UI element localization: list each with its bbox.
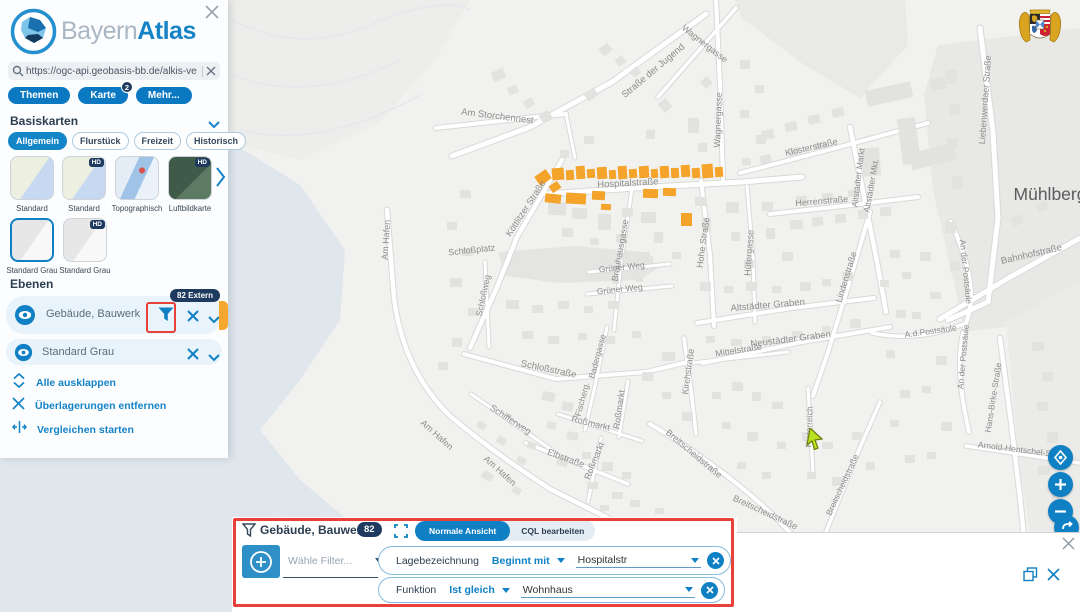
search-icon: [12, 65, 24, 77]
choose-filter-underline: [283, 577, 378, 578]
nav-karte-label: Karte: [90, 90, 116, 101]
panel-close-icon[interactable]: [1047, 568, 1060, 581]
toggle-normale-ansicht[interactable]: Normale Ansicht: [415, 521, 510, 541]
thumb-label: Standard Grau: [58, 266, 112, 275]
action-label: Überlagerungen entfernen: [35, 400, 166, 412]
brand-bold: Atlas: [137, 17, 196, 45]
thumbs-scroll-right-icon[interactable]: [215, 166, 226, 193]
search-box: [8, 62, 220, 80]
layer-drag-tab[interactable]: [219, 301, 228, 330]
sidebar-close-icon[interactable]: [204, 4, 222, 22]
layer-remove-icon[interactable]: [187, 347, 199, 365]
rule-value: Hospitalstr: [578, 554, 628, 566]
mouse-cursor-icon: [806, 428, 826, 455]
tab-historisch[interactable]: Historisch: [186, 132, 246, 150]
hd-badge: HD: [89, 158, 104, 167]
ebenen-heading: Ebenen: [10, 277, 53, 291]
remove-rule-icon[interactable]: [701, 582, 718, 599]
rule-attribute: Funktion: [396, 584, 436, 596]
layer-label: Gebäude, Bauwerk: [46, 308, 140, 320]
tab-allgemein[interactable]: Allgemein: [8, 132, 67, 150]
layer-card-standard-grau: Standard Grau: [6, 339, 222, 365]
layer-filter-icon[interactable]: [158, 307, 174, 327]
remove-overlays-icon: [12, 397, 25, 415]
basemap-category-tabs: Allgemein Flurstück Freizeit Historisch: [8, 132, 246, 150]
app-title: BayernAtlas: [61, 17, 196, 46]
chevron-down-icon[interactable]: [557, 558, 565, 563]
thumb-label: Topographisch: [110, 204, 164, 213]
hd-badge: HD: [90, 220, 105, 229]
view-mode-toggle: Normale Ansicht CQL bearbeiten: [415, 520, 595, 541]
basiskarten-heading: Basiskarten: [10, 114, 78, 128]
fullscreen-icon[interactable]: [394, 524, 408, 543]
layer-label: Standard Grau: [42, 346, 114, 358]
thumb-label: Standard: [5, 204, 59, 213]
basemap-thumb-standard-grau-1[interactable]: [10, 218, 54, 262]
bavaria-coat-of-arms: [1016, 6, 1064, 53]
main-nav: Themen Karte2 Mehr...: [8, 87, 192, 104]
rule-value-field[interactable]: Hospitalstr: [576, 553, 701, 568]
filter-panel: Gebäude, Bauwerk 82 Normale Ansicht CQL …: [232, 517, 737, 612]
filter-funnel-icon: [242, 523, 256, 542]
tab-freizeit[interactable]: Freizeit: [134, 132, 182, 150]
basemap-thumb-standard-2[interactable]: HD: [62, 156, 106, 200]
action-label: Alle ausklappen: [36, 377, 116, 389]
sidebar-panel: BayernAtlas Themen Karte2 Mehr... Basisk…: [0, 0, 228, 458]
brand-light: Bayern: [61, 17, 137, 45]
layer-remove-icon[interactable]: [187, 309, 199, 327]
action-vergleichen-starten[interactable]: Vergleichen starten: [12, 420, 134, 439]
strip-close-icon[interactable]: [1062, 537, 1075, 555]
layer-visibility-icon[interactable]: [14, 343, 33, 367]
chevron-down-icon[interactable]: [691, 558, 699, 563]
filter-rule-lagebezeichnung: Lagebezeichnung Beginnt mit Hospitalstr: [378, 546, 731, 575]
layer-expand-icon[interactable]: [208, 349, 220, 367]
result-count-badge: 82: [357, 522, 382, 537]
layer-card-gebaeude-bauwerk: 82 Extern Gebäude, Bauwerk: [6, 296, 222, 334]
thumb-label: Standard: [57, 204, 111, 213]
basemap-thumb-topographisch[interactable]: [115, 156, 159, 200]
chevron-down-icon[interactable]: [685, 587, 693, 592]
rule-value: Wohnhaus: [523, 584, 573, 596]
filter-panel-title: Gebäude, Bauwerk: [260, 523, 368, 537]
toggle-cql-bearbeiten[interactable]: CQL bearbeiten: [510, 521, 595, 541]
search-divider: [202, 66, 203, 77]
remove-rule-icon[interactable]: [707, 552, 724, 569]
choose-filter-label: Wähle Filter...: [288, 555, 352, 567]
thumb-label: Luftbildkarte: [163, 204, 217, 213]
nav-mehr-button[interactable]: Mehr...: [136, 87, 192, 104]
rule-operator[interactable]: Beginnt mit: [492, 555, 550, 567]
bottom-info-strip: [737, 532, 1080, 612]
action-alle-ausklappen[interactable]: Alle ausklappen: [12, 373, 116, 393]
search-input[interactable]: [24, 65, 199, 78]
nav-karte-button[interactable]: Karte2: [78, 87, 128, 104]
choose-filter-dropdown[interactable]: Wähle Filter...: [288, 555, 384, 567]
undock-window-icon[interactable]: [1023, 567, 1038, 582]
thumb-label: Standard Grau: [5, 266, 59, 275]
add-filter-button[interactable]: [242, 545, 280, 578]
action-label: Vergleichen starten: [37, 424, 134, 436]
hd-badge: HD: [195, 158, 210, 167]
basemap-thumb-luftbildkarte[interactable]: HD: [168, 156, 212, 200]
bayernatlas-app: WagnergasseWagnergasseStraße der JugendA…: [0, 0, 1080, 612]
rule-attribute: Lagebezeichnung: [396, 555, 479, 567]
rule-operator[interactable]: Ist gleich: [449, 584, 495, 596]
expand-all-icon: [12, 373, 26, 393]
chevron-down-icon[interactable]: [502, 588, 510, 593]
bayernatlas-logo: [10, 8, 57, 60]
rule-value-field[interactable]: Wohnhaus: [521, 583, 695, 598]
extern-count-badge: 82 Extern: [170, 289, 220, 302]
basemap-thumb-standard-1[interactable]: [10, 156, 54, 200]
nav-themen-button[interactable]: Themen: [8, 87, 70, 104]
zoom-in-button[interactable]: [1048, 472, 1073, 497]
karte-count-badge: 2: [121, 81, 133, 93]
layer-visibility-icon[interactable]: [14, 304, 36, 331]
svg-text:Mühlberg: Mühlberg: [1014, 184, 1080, 204]
compare-icon: [12, 420, 27, 439]
action-ueberlagerungen-entfernen[interactable]: Überlagerungen entfernen: [12, 397, 166, 415]
filter-rule-funktion: Funktion Ist gleich Wohnhaus: [378, 577, 725, 603]
svg-text:Wagnergasse: Wagnergasse: [712, 92, 724, 148]
tab-flurstueck[interactable]: Flurstück: [72, 132, 129, 150]
geolocate-button[interactable]: [1048, 445, 1073, 470]
search-clear-icon[interactable]: [206, 66, 216, 76]
basemap-thumb-standard-grau-2[interactable]: HD: [63, 218, 107, 262]
